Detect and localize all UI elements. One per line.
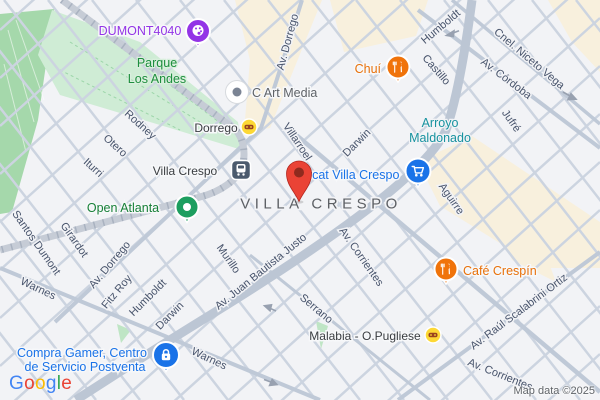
- subway-icon[interactable]: [425, 327, 441, 343]
- map-viewport[interactable]: Av. Dorrego Humboldt Cnel. Niceto Vega A…: [0, 0, 600, 400]
- train-icon[interactable]: [232, 161, 251, 180]
- poi-label-compra-gamer-line2[interactable]: de Servicio Postventa: [25, 360, 146, 374]
- generic-poi-icon[interactable]: [226, 81, 249, 104]
- poi-label-dumont4040[interactable]: DUMONT4040: [99, 24, 182, 38]
- poi-label-c-art-media[interactable]: C Art Media: [252, 86, 317, 100]
- neighborhood-label: VILLA CRESPO: [240, 196, 402, 213]
- poi-label-cafe-crespin[interactable]: Café Crespín: [463, 264, 537, 278]
- poi-label-chui[interactable]: Chuí: [355, 62, 382, 76]
- map-attribution: Map data ©2025: [514, 385, 596, 397]
- subway-icon[interactable]: [241, 119, 257, 135]
- station-label-malabia-pugliese[interactable]: Malabia - O.Pugliese: [309, 329, 421, 343]
- poi-label-compra-gamer-line1[interactable]: Compra Gamer, Centro: [17, 346, 147, 360]
- google-logo-letter: G: [9, 373, 24, 395]
- station-label-villa-crespo[interactable]: Villa Crespo: [153, 164, 218, 178]
- park-label-line2: Los Andes: [128, 72, 186, 86]
- park-label-line1: Parque: [137, 56, 177, 70]
- station-label-dorrego[interactable]: Dorrego: [194, 121, 238, 135]
- google-logo-letter: o: [24, 373, 35, 395]
- google-logo-letter: e: [61, 373, 72, 395]
- poi-label-open-atlanta[interactable]: Open Atlanta: [87, 201, 159, 215]
- arroyo-label-line1: Arroyo: [422, 116, 459, 130]
- map-canvas[interactable]: Av. Dorrego Humboldt Cnel. Niceto Vega A…: [0, 0, 600, 400]
- google-logo-letter: g: [46, 373, 57, 395]
- google-logo-letter: o: [35, 373, 46, 395]
- google-logo[interactable]: Google: [9, 373, 72, 395]
- arroyo-label-line2: Maldonado: [409, 131, 471, 145]
